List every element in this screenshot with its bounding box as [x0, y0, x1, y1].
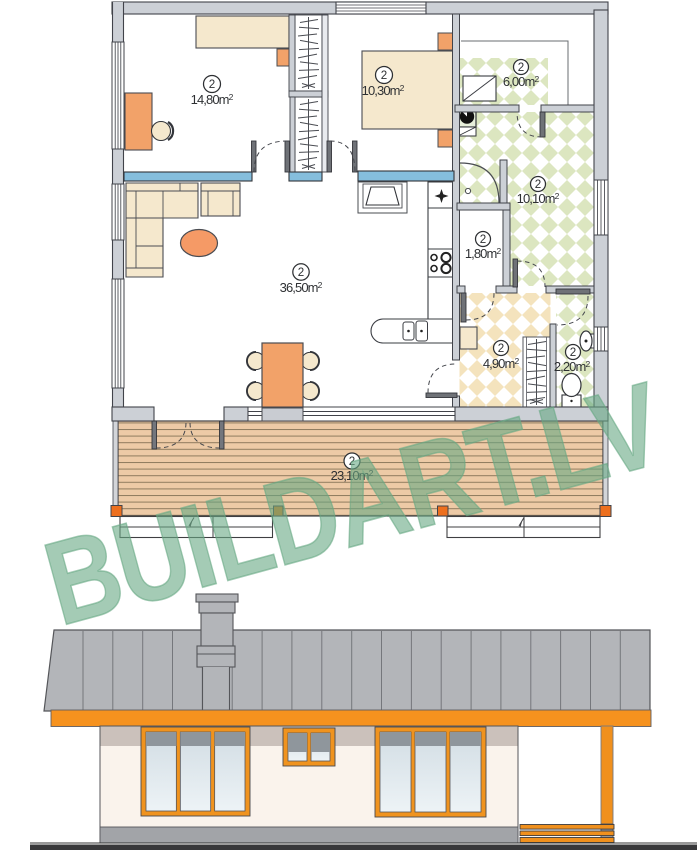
svg-text:14,80m2: 14,80m2 — [191, 92, 234, 107]
svg-text:2: 2 — [518, 61, 524, 74]
svg-text:2: 2 — [480, 233, 486, 246]
svg-text:4,90m2: 4,90m2 — [483, 356, 520, 371]
svg-text:2: 2 — [209, 78, 215, 91]
svg-text:10,30m2: 10,30m2 — [362, 83, 405, 98]
svg-text:6,00m2: 6,00m2 — [503, 74, 540, 89]
svg-text:2,20m2: 2,20m2 — [554, 359, 591, 374]
svg-text:2: 2 — [535, 178, 541, 191]
svg-text:2: 2 — [298, 266, 304, 279]
svg-text:36,50m2: 36,50m2 — [280, 280, 323, 295]
svg-text:10,10m2: 10,10m2 — [517, 191, 560, 206]
svg-text:2: 2 — [381, 69, 387, 82]
svg-text:2: 2 — [570, 346, 576, 359]
svg-text:1,80m2: 1,80m2 — [465, 246, 502, 261]
svg-text:2: 2 — [498, 342, 504, 355]
